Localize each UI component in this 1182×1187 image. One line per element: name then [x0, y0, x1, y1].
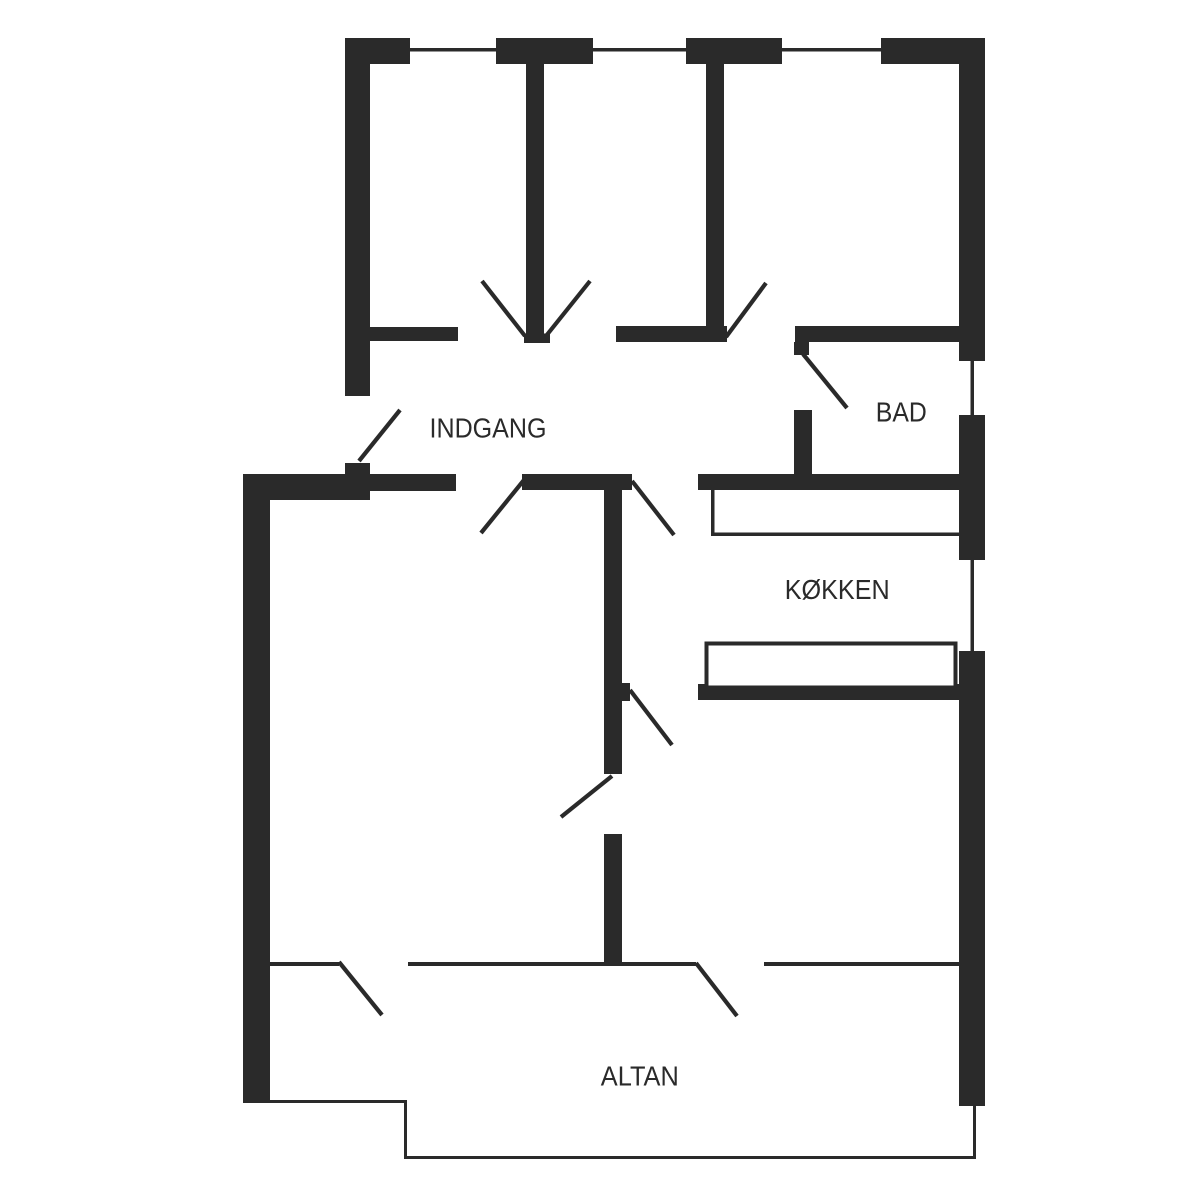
svg-text:INDGANG: INDGANG [430, 413, 547, 444]
svg-text:ALTAN: ALTAN [601, 1061, 679, 1092]
svg-text:BAD: BAD [876, 397, 927, 428]
svg-text:KØKKEN: KØKKEN [785, 574, 890, 605]
